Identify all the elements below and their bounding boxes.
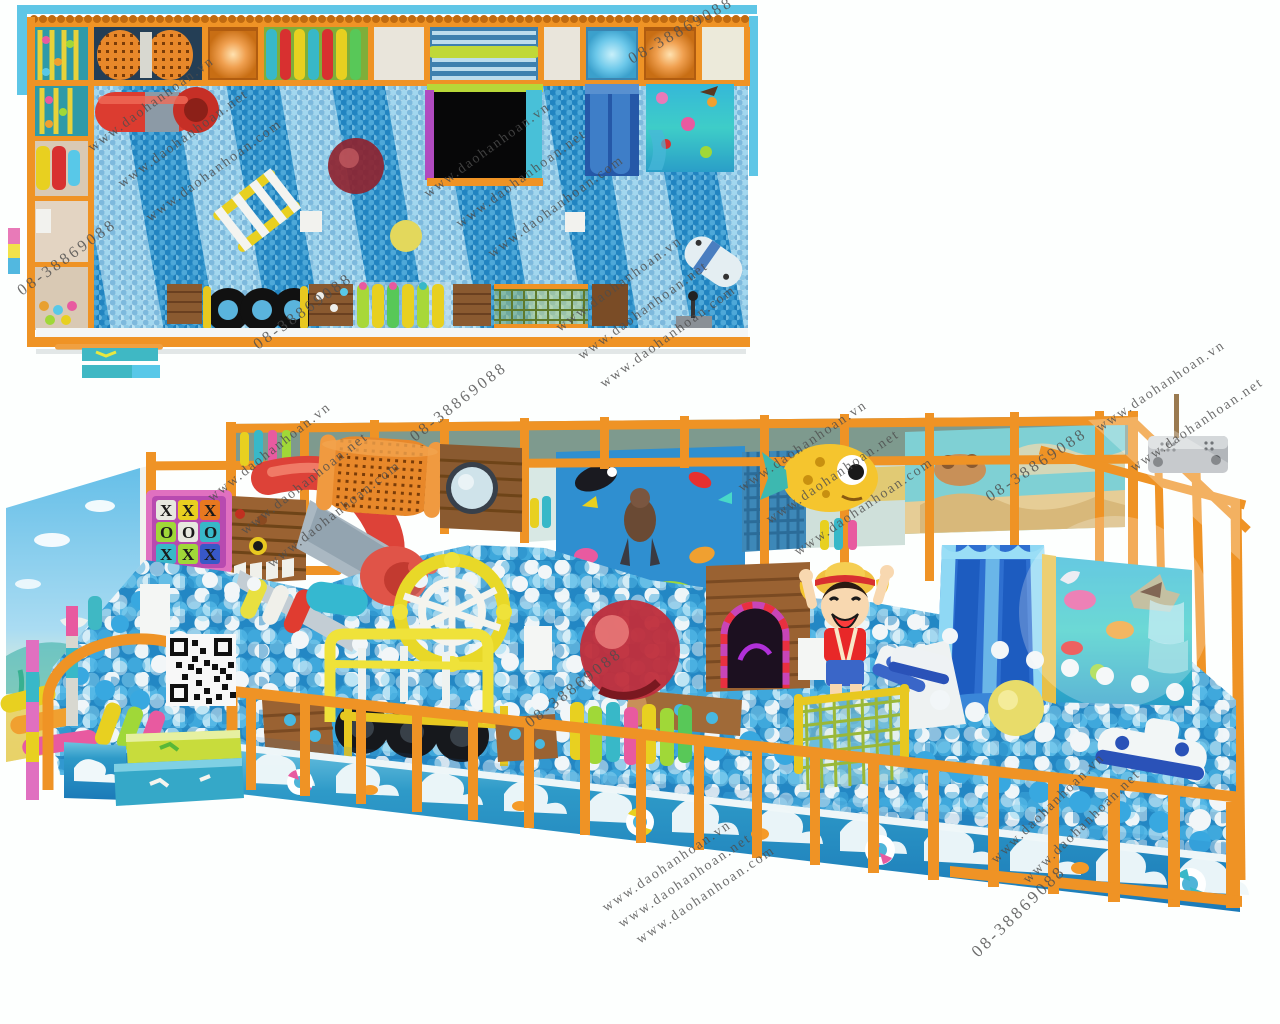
svg-text:X: X	[204, 545, 217, 564]
svg-text:O: O	[160, 523, 173, 542]
svg-text:X: X	[160, 501, 173, 520]
svg-text:X: X	[182, 545, 195, 564]
svg-text:O: O	[182, 523, 195, 542]
svg-text:X: X	[182, 501, 195, 520]
svg-text:O: O	[204, 523, 217, 542]
svg-text:X: X	[160, 545, 173, 564]
